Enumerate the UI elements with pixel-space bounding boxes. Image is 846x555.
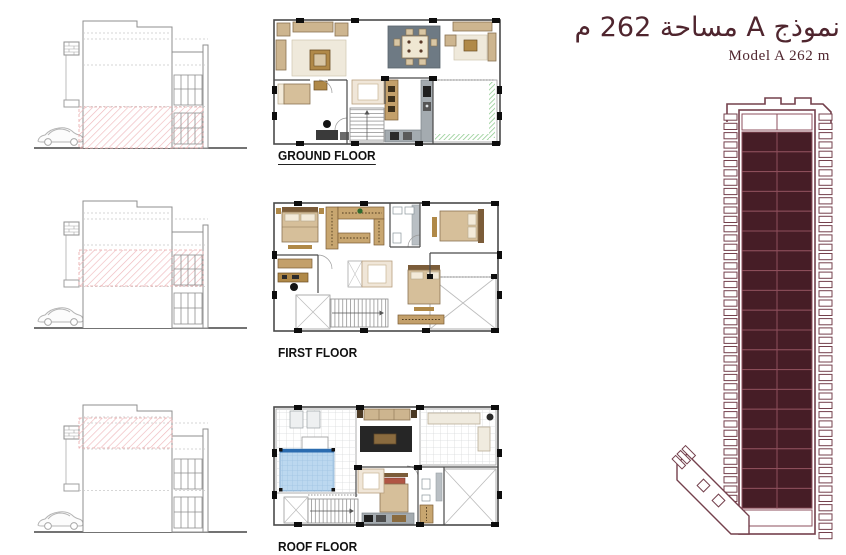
terrace-right — [420, 409, 496, 465]
roof-floor-label: ROOF FLOOR — [278, 540, 357, 554]
first-floor-label: FIRST FLOOR — [278, 346, 357, 360]
kitchen — [385, 80, 433, 142]
elevation-drawing — [33, 198, 248, 332]
page-title-english: Model A 262 m — [550, 48, 840, 65]
floor-plan-ground-block: GROUND FLOOR — [272, 18, 502, 165]
living-room — [276, 22, 348, 76]
page-title-arabic: نموذج A مساحة 262 م — [550, 10, 840, 45]
stairs — [296, 295, 388, 329]
study — [278, 259, 312, 291]
bedroom-center — [398, 265, 444, 324]
title-block: نموذج A مساحة 262 م Model A 262 m — [550, 10, 840, 65]
car-silhouette — [38, 128, 83, 146]
brochure-page: { "header": { "title_ar": "نموذج A مساحة… — [0, 0, 846, 555]
car-silhouette — [38, 512, 83, 530]
elevation-roof — [33, 402, 248, 536]
floor-plan-first-block: FIRST FLOOR — [272, 201, 502, 360]
elevation-first — [33, 198, 248, 332]
elevator-shaft — [348, 261, 392, 287]
dining-area — [388, 26, 440, 68]
kitchenette — [362, 513, 414, 524]
site-plan-svg — [661, 90, 843, 552]
floor-plan-ground — [272, 18, 502, 146]
bathroom-first — [393, 205, 420, 245]
bedroom-right — [432, 209, 484, 243]
elevation-drawing — [33, 402, 248, 536]
bedroom-ground — [278, 81, 327, 104]
majlis — [445, 22, 496, 61]
stairs — [350, 108, 384, 142]
swimming-pool — [279, 448, 335, 492]
desk-area — [316, 120, 349, 140]
floor-plan-roof — [272, 405, 502, 532]
roof-x-area — [444, 469, 496, 525]
elevation-ground — [33, 18, 248, 152]
bathroom-roof — [420, 473, 442, 523]
highlighted-floor-hatch — [79, 418, 172, 448]
elevator-shaft — [358, 469, 384, 493]
bedroom-master — [276, 207, 324, 249]
courtyard — [433, 80, 497, 142]
floor-plan-roof-block: ROOF FLOOR — [272, 405, 502, 554]
car-silhouette — [38, 308, 83, 326]
elevator-shaft — [352, 80, 384, 104]
walk-in-closet — [326, 207, 384, 249]
stairs — [284, 495, 358, 523]
elevation-drawing — [33, 18, 248, 152]
site-plan — [661, 90, 843, 552]
floor-plan-first — [272, 201, 502, 333]
ground-floor-label: GROUND FLOOR — [278, 149, 376, 165]
roof-lounge — [357, 409, 417, 452]
